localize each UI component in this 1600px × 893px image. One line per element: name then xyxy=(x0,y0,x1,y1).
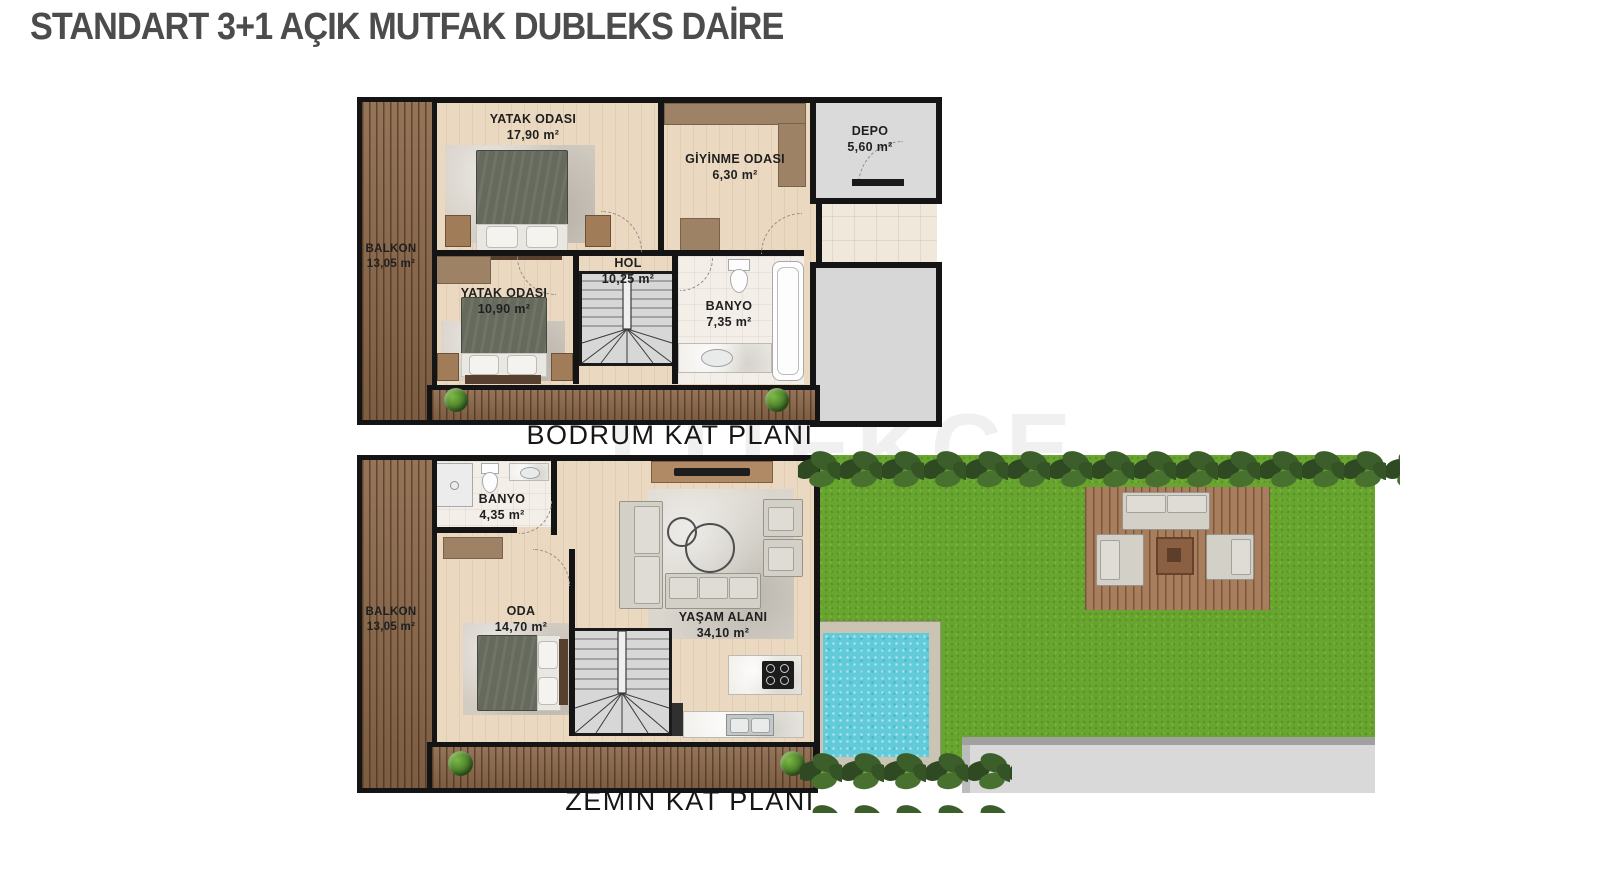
bathroom-counter xyxy=(678,343,772,373)
chair-cushion xyxy=(1231,539,1251,575)
sofa-cushion xyxy=(634,506,660,554)
floorplan-page: STANDART 3+1 AÇIK MUTFAK DUBLEKS DAİRE T… xyxy=(0,0,1600,893)
bed-duvet xyxy=(476,150,568,226)
tv-console xyxy=(651,461,773,483)
oda-bed xyxy=(477,631,569,713)
bathtub xyxy=(772,261,804,381)
kitchen-counter xyxy=(683,711,804,738)
sofa-cushion xyxy=(729,577,758,599)
ground-deck xyxy=(427,742,818,793)
bedroom1-label: YATAK ODASI 17,90 m² xyxy=(463,111,603,144)
chair-cushion xyxy=(1100,540,1120,580)
sofa-cushion xyxy=(1126,495,1166,513)
table-top xyxy=(1167,548,1181,562)
staircase xyxy=(572,628,672,736)
living-armchair xyxy=(763,539,803,577)
living-sofa-bottom xyxy=(665,573,761,609)
door-arc xyxy=(533,549,570,586)
burner xyxy=(780,676,789,685)
bedroom1-bed xyxy=(470,150,572,262)
chair-cushion xyxy=(768,507,794,531)
cooktop-icon xyxy=(762,661,794,689)
sofa-cushion xyxy=(1167,495,1207,513)
bed-base xyxy=(559,639,568,705)
bed-duvet xyxy=(477,635,539,711)
sink-basin xyxy=(701,349,733,367)
interior-wall xyxy=(551,461,557,535)
ground-balcony-label: BALKON 13,05 m² xyxy=(356,605,426,635)
hall-label: HOL 10,25 m² xyxy=(583,255,673,288)
bathroom-counter xyxy=(509,463,549,481)
coffee-table xyxy=(667,517,697,547)
outdoor-armchair xyxy=(1096,534,1144,586)
burner xyxy=(780,664,789,673)
kitchen-island xyxy=(728,655,802,695)
adjacent-unit-area xyxy=(810,262,942,427)
interior-wall xyxy=(569,549,575,736)
bed-pillow xyxy=(538,677,558,705)
plant-icon xyxy=(444,388,468,412)
interior-wall xyxy=(433,527,517,533)
sink-basin xyxy=(751,718,770,733)
door-arc xyxy=(761,213,802,254)
dressing-label: GİYİNME ODASI 6,30 m² xyxy=(671,151,799,184)
storage-label: DEPO 5,60 m² xyxy=(816,123,924,156)
sink-basin xyxy=(730,718,749,733)
bed-base xyxy=(465,375,541,384)
bathtub-inner xyxy=(777,267,799,375)
hedge-bottom xyxy=(800,745,1012,813)
garden-path xyxy=(962,737,1375,793)
bed-pillow xyxy=(526,226,558,248)
basement-balcony-label: BALKON 13,05 m² xyxy=(356,242,426,272)
burner xyxy=(766,664,775,673)
outdoor-sofa xyxy=(1122,492,1210,530)
bedroom2-closet xyxy=(433,256,491,284)
door-leaf xyxy=(852,179,904,186)
basement-balcony: BALKON 13,05 m² xyxy=(357,97,437,425)
door-arc xyxy=(601,211,642,252)
hedge-top xyxy=(798,443,1400,495)
outdoor-table xyxy=(1156,537,1194,575)
dressing-cabinet xyxy=(680,218,720,254)
interior-wall xyxy=(573,256,579,384)
living-sofa-left xyxy=(619,501,663,609)
basement-deck xyxy=(427,385,820,425)
sofa-cushion xyxy=(634,556,660,604)
page-title: STANDART 3+1 AÇIK MUTFAK DUBLEKS DAİRE xyxy=(30,6,783,49)
tv-icon xyxy=(674,468,750,476)
sofa-cushion xyxy=(699,577,728,599)
outdoor-armchair xyxy=(1206,534,1254,580)
sofa-cushion xyxy=(669,577,698,599)
bed-pillow xyxy=(507,355,537,375)
interior-wall xyxy=(658,103,664,253)
bed-pillow xyxy=(469,355,499,375)
plant-icon xyxy=(765,388,789,412)
closet xyxy=(443,537,503,559)
nightstand xyxy=(551,353,573,381)
nightstand xyxy=(445,215,471,247)
living-armchair xyxy=(763,499,803,537)
bedroom2-label: YATAK ODASI 10,90 m² xyxy=(438,285,570,318)
dressing-wardrobe xyxy=(664,103,806,125)
bed-pillow xyxy=(538,641,558,669)
ground-main-unit: BANYO 4,35 m² ODA 14,70 m² xyxy=(427,455,820,754)
nightstand xyxy=(437,353,459,381)
ground-balcony: BALKON 13,05 m² xyxy=(357,455,437,793)
bed-pillow xyxy=(486,226,518,248)
kitchen-sink xyxy=(726,714,774,736)
basement-main-unit: YATAK ODASI 17,90 m² GİYİNME ODASI 6,30 … xyxy=(427,97,822,402)
storage-room: DEPO 5,60 m² xyxy=(810,97,942,204)
oda-label: ODA 14,70 m² xyxy=(461,603,581,636)
shower-drain xyxy=(450,481,459,490)
chair-cushion xyxy=(768,547,794,571)
living-label: YAŞAM ALANI 34,10 m² xyxy=(651,609,795,642)
ground-bathroom-label: BANYO 4,35 m² xyxy=(457,491,547,524)
basement-bathroom-label: BANYO 7,35 m² xyxy=(685,298,773,331)
sink-basin xyxy=(520,467,540,479)
garden-deck xyxy=(1085,487,1270,610)
plant-icon xyxy=(448,751,473,776)
burner xyxy=(766,676,775,685)
